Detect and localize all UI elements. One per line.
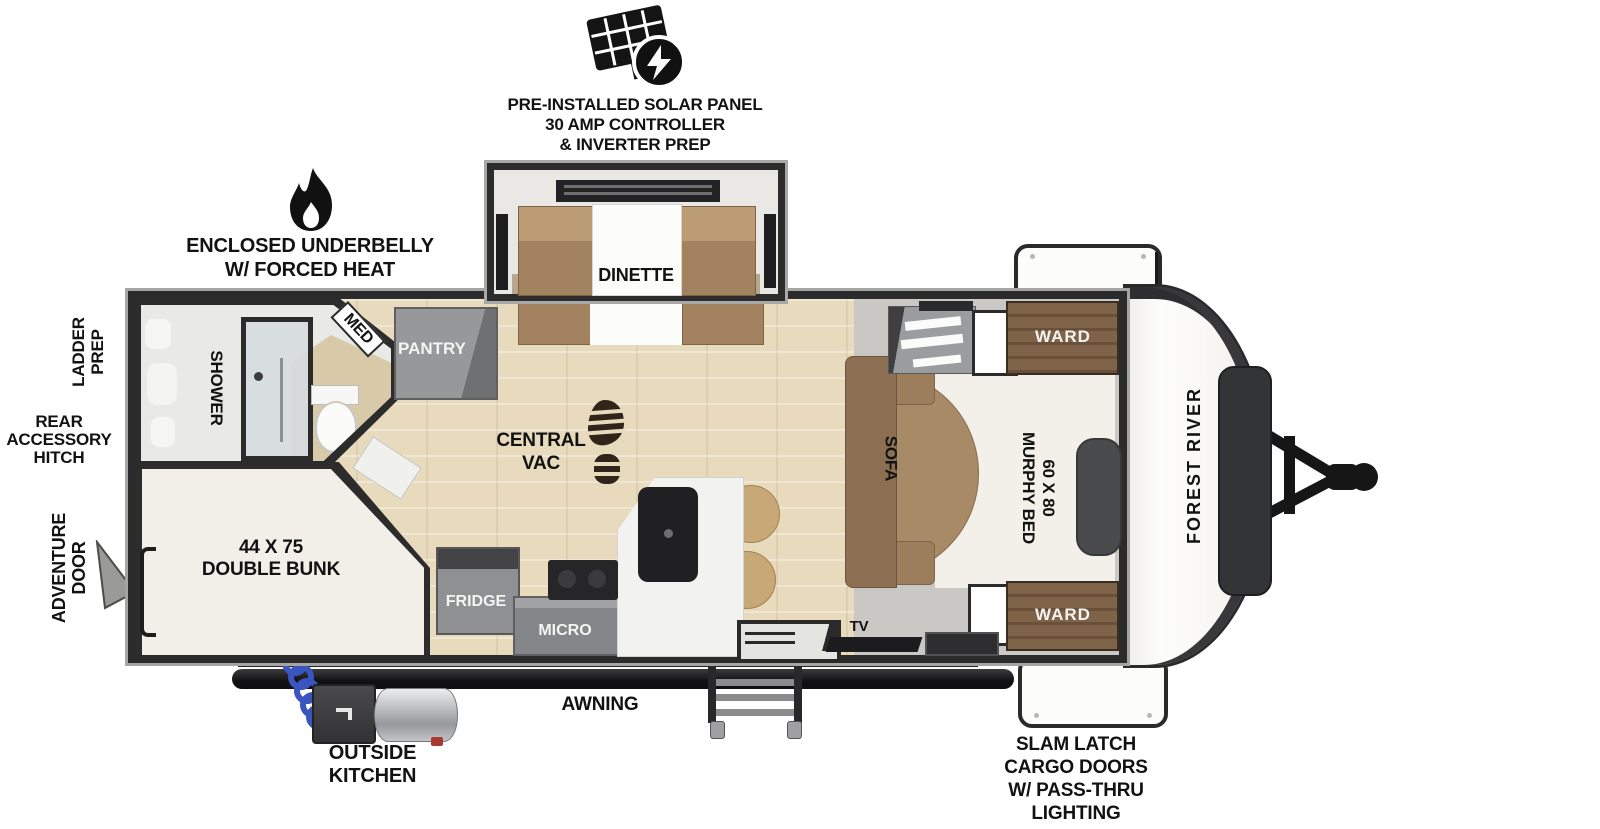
outside-kitchen-unit	[312, 684, 376, 744]
dinette-table-stub	[590, 299, 682, 345]
dinette-bench-left-stub	[518, 299, 592, 345]
fridge-label: FRIDGE	[438, 593, 514, 611]
flame-icon	[286, 168, 338, 232]
pantry-label: PANTRY	[396, 339, 468, 358]
brand-name: FOREST RIVER	[1184, 341, 1204, 589]
dinette-slideout: DINETTE	[487, 163, 785, 301]
tv-panel	[826, 637, 923, 652]
floorplan-diagram: PRE-INSTALLED SOLAR PANEL 30 AMP CONTROL…	[0, 0, 1600, 829]
outside-kitchen-line-1: OUTSIDE	[300, 742, 445, 765]
dinette-window-right	[764, 214, 776, 288]
slam-latch-line-1: SLAM LATCH	[1000, 733, 1152, 756]
wardrobe-top: WARD	[1006, 301, 1119, 375]
adventure-door-swing	[140, 547, 156, 637]
rock-guard-panel	[1218, 366, 1272, 596]
antenna-line	[1155, 252, 1158, 288]
shower-label: SHOWER	[206, 333, 226, 443]
slam-latch-line-2: CARGO DOORS	[1000, 756, 1152, 779]
shower-rail	[280, 358, 283, 442]
ward-top-label: WARD	[1026, 327, 1100, 346]
entry-steps	[708, 663, 802, 737]
solar-line-2: 30 AMP CONTROLLER	[455, 115, 815, 135]
rear-accessory-hitch-callout: REAR ACCESSORY HITCH	[0, 413, 118, 467]
adventure-door-line-2: DOOR	[69, 493, 89, 643]
dinette-label: DINETTE	[554, 265, 718, 285]
double-bunk-line-1: 44 X 75	[146, 537, 396, 559]
ladder-prep-line-1: LADDER	[69, 292, 88, 412]
dinette-window-left	[496, 214, 508, 290]
tv-label: TV	[836, 619, 882, 636]
cooktop	[548, 560, 618, 600]
underbelly-line-2: W/ FORCED HEAT	[130, 258, 490, 282]
kitchen-sink	[638, 487, 698, 582]
bath-shelf-2	[147, 363, 177, 405]
pantry: PANTRY	[394, 307, 498, 400]
outside-kitchen-line-2: KITCHEN	[300, 765, 445, 788]
bath-shelf-3	[151, 417, 175, 447]
roof-vent	[556, 180, 720, 202]
bed-pillow	[1076, 438, 1122, 556]
ward-bottom-label: WARD	[1026, 605, 1100, 624]
double-bunk-label: 44 X 75 DOUBLE BUNK	[146, 537, 396, 581]
shower-stall	[241, 317, 313, 461]
adventure-door-line-1: ADVENTURE	[49, 493, 69, 643]
outside-griddle-tank	[374, 688, 458, 742]
sofa-label: SOFA	[881, 419, 900, 499]
ladder-prep-line-2: PREP	[88, 292, 107, 412]
underbelly-line-1: ENCLOSED UNDERBELLY	[130, 234, 490, 258]
trailer-body: SHOWER MED PANTRY 44 X 75 DOUBLE BUNK FR…	[128, 291, 1127, 663]
solar-line-3: & INVERTER PREP	[455, 135, 815, 155]
double-bunk-line-2: DOUBLE BUNK	[146, 559, 396, 581]
underbelly-callout: ENCLOSED UNDERBELLY W/ FORCED HEAT	[130, 234, 490, 282]
bedroom-window	[925, 632, 999, 656]
bedroom-dresser	[888, 306, 976, 374]
outside-kitchen-label: OUTSIDE KITCHEN	[300, 742, 445, 788]
fridge: FRIDGE	[436, 547, 520, 635]
dinette-bench-right-stub	[682, 299, 764, 345]
slam-latch-callout: SLAM LATCH CARGO DOORS W/ PASS-THRU LIGH…	[1000, 733, 1152, 825]
murphy-bed-line-1: 60 X 80	[1038, 423, 1058, 553]
solar-line-1: PRE-INSTALLED SOLAR PANEL	[455, 95, 815, 115]
adventure-door-callout: ADVENTURE DOOR	[49, 493, 95, 643]
rear-hitch-line-1: REAR	[0, 413, 118, 431]
bootprint-icon	[583, 398, 627, 488]
rear-hitch-line-2: ACCESSORY	[0, 431, 118, 449]
entry-landing	[737, 620, 841, 663]
slam-latch-line-3: W/ PASS-THRU	[1000, 779, 1152, 802]
solar-callout: PRE-INSTALLED SOLAR PANEL 30 AMP CONTROL…	[455, 95, 815, 155]
micro-label: MICRO	[525, 622, 605, 640]
slam-latch-line-4: LIGHTING	[1000, 802, 1152, 825]
ladder-prep-callout: LADDER PREP	[69, 292, 113, 412]
murphy-bed-label: 60 X 80 MURPHY BED	[1016, 423, 1058, 553]
rear-hitch-line-3: HITCH	[0, 449, 118, 467]
murphy-bed-line-2: MURPHY BED	[1018, 423, 1038, 553]
wardrobe-bottom: WARD	[1006, 581, 1119, 651]
bath-shelf-1	[145, 319, 171, 349]
shower-head	[254, 372, 263, 381]
solar-panel-icon	[583, 0, 689, 92]
sink-drain	[664, 529, 673, 538]
awning-label: AWNING	[540, 694, 660, 715]
